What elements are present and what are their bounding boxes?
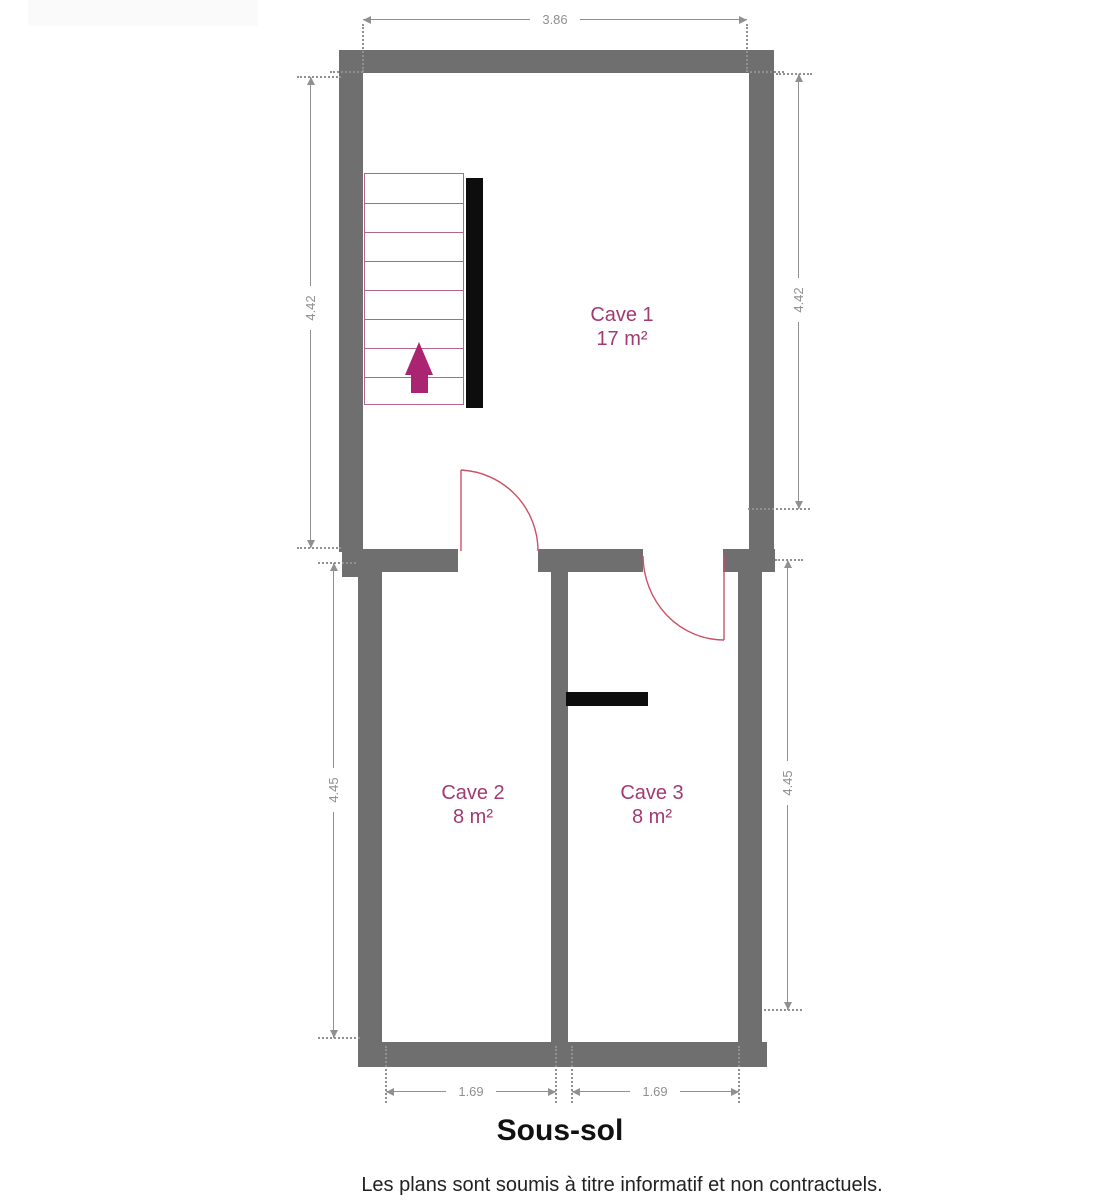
stair-tread-line bbox=[365, 261, 463, 262]
dim-value-bottom-right: 1.69 bbox=[630, 1084, 680, 1100]
dim-arrow bbox=[386, 1088, 394, 1096]
room-label-cave1: Cave 1 17 m² bbox=[537, 303, 707, 351]
dim-extension bbox=[746, 24, 748, 72]
dim-arrow bbox=[739, 16, 747, 24]
wall-upper-left bbox=[339, 50, 363, 552]
stair-up-arrow-icon bbox=[405, 342, 433, 375]
dim-value-lower-right: 4.45 bbox=[780, 761, 796, 805]
floor-plan-page: 3.86 4.42 4.42 4.45 4.45 1.69 1.69 Cave … bbox=[0, 0, 1113, 1200]
room-area: 8 m² bbox=[388, 805, 558, 829]
wall-lower-left bbox=[358, 549, 382, 1067]
dim-arrow bbox=[572, 1088, 580, 1096]
dim-extension bbox=[775, 559, 803, 561]
room-name: Cave 2 bbox=[388, 781, 558, 805]
dim-extension bbox=[555, 1046, 557, 1103]
room-label-cave2: Cave 2 8 m² bbox=[388, 781, 558, 829]
dim-arrow bbox=[307, 77, 315, 85]
dim-value-lower-left: 4.45 bbox=[326, 768, 342, 812]
dim-arrow bbox=[795, 74, 803, 82]
dim-extension bbox=[571, 1046, 573, 1103]
watermark bbox=[28, 0, 258, 26]
room-name: Cave 3 bbox=[567, 781, 737, 805]
dim-value-upper-right: 4.42 bbox=[791, 278, 807, 322]
wall-bottom bbox=[362, 1042, 767, 1067]
stair-tread-line bbox=[365, 290, 463, 291]
room-label-cave3: Cave 3 8 m² bbox=[567, 781, 737, 829]
dim-extension bbox=[318, 1037, 360, 1039]
wall-middle-center-segment bbox=[538, 549, 643, 572]
dim-extension bbox=[776, 73, 812, 75]
dim-extension bbox=[362, 24, 364, 72]
dim-value-upper-left: 4.42 bbox=[303, 286, 319, 330]
dim-extension bbox=[330, 71, 363, 73]
dim-extension bbox=[297, 547, 341, 549]
stair-tread-line bbox=[365, 232, 463, 233]
disclaimer-text: Les plans sont soumis à titre informatif… bbox=[322, 1174, 922, 1197]
stair-tread-line bbox=[365, 203, 463, 204]
stair-up-arrow-shaft bbox=[411, 373, 428, 393]
dim-value-top: 3.86 bbox=[530, 12, 580, 28]
door-swing-right bbox=[643, 556, 724, 640]
dim-extension bbox=[297, 76, 341, 78]
dim-arrow bbox=[784, 560, 792, 568]
room-area: 8 m² bbox=[567, 805, 737, 829]
dim-extension bbox=[748, 508, 810, 510]
stair-side-wall bbox=[466, 178, 483, 408]
room-name: Cave 1 bbox=[537, 303, 707, 327]
dim-value-bottom-left: 1.69 bbox=[446, 1084, 496, 1100]
dim-extension bbox=[385, 1046, 387, 1103]
wall-top bbox=[339, 50, 774, 73]
dim-extension bbox=[738, 1046, 740, 1103]
wall-upper-right bbox=[749, 50, 774, 552]
dim-extension bbox=[764, 1009, 802, 1011]
door-swing-left bbox=[461, 470, 538, 551]
partial-wall-cave3 bbox=[566, 692, 648, 706]
dim-extension bbox=[318, 562, 356, 564]
room-area: 17 m² bbox=[537, 327, 707, 351]
wall-lower-right bbox=[738, 560, 762, 1067]
dim-arrow bbox=[363, 16, 371, 24]
stair-tread-line bbox=[365, 319, 463, 320]
dim-arrow bbox=[330, 563, 338, 571]
floor-title: Sous-sol bbox=[410, 1114, 710, 1148]
